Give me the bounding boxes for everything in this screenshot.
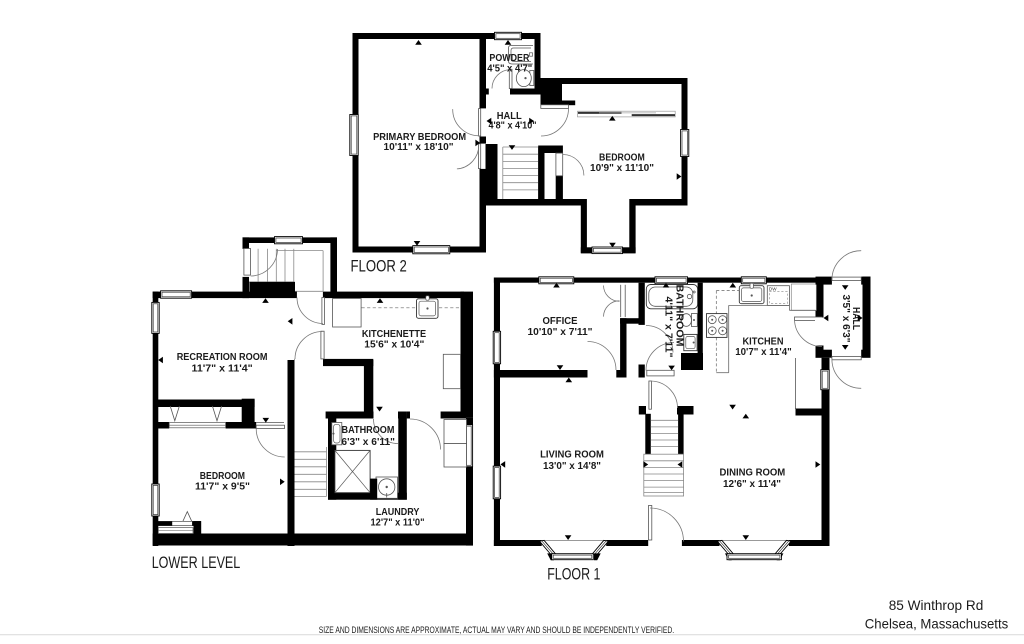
svg-text:RECREATION ROOM: RECREATION ROOM	[177, 352, 268, 363]
svg-text:FLOOR 2: FLOOR 2	[351, 258, 407, 276]
svg-text:6'3" x 6'11": 6'3" x 6'11"	[341, 437, 395, 448]
svg-text:DW: DW	[769, 287, 777, 292]
svg-text:FLOOR 1: FLOOR 1	[547, 565, 600, 583]
svg-text:13'0" x 14'8": 13'0" x 14'8"	[543, 461, 601, 472]
svg-text:10'9" x 11'10": 10'9" x 11'10"	[590, 163, 654, 174]
svg-text:KITCHEN: KITCHEN	[743, 337, 784, 348]
svg-text:LIVING ROOM: LIVING ROOM	[540, 450, 604, 461]
svg-text:12'6" x 11'4": 12'6" x 11'4"	[723, 479, 781, 490]
svg-text:Chelsea, Massachusetts: Chelsea, Massachusetts	[865, 616, 1008, 631]
svg-text:OFFICE: OFFICE	[543, 316, 578, 327]
svg-text:BEDROOM: BEDROOM	[200, 471, 245, 482]
svg-text:11'7" x 9'5": 11'7" x 9'5"	[195, 482, 250, 493]
svg-text:11'7" x 11'4": 11'7" x 11'4"	[192, 363, 253, 374]
svg-text:BATHROOM: BATHROOM	[674, 285, 685, 347]
svg-text:BATHROOM: BATHROOM	[342, 425, 395, 436]
svg-text:3'5" x 6'3": 3'5" x 6'3"	[840, 295, 851, 343]
svg-text:LOWER LEVEL: LOWER LEVEL	[152, 554, 241, 572]
svg-text:BEDROOM: BEDROOM	[599, 152, 645, 163]
svg-text:4'5" x 4'7": 4'5" x 4'7"	[487, 64, 532, 75]
svg-text:85 Winthrop Rd: 85 Winthrop Rd	[889, 598, 984, 613]
svg-text:DINING ROOM: DINING ROOM	[720, 468, 786, 479]
svg-text:4'11" x 7'11": 4'11" x 7'11"	[663, 297, 674, 358]
svg-text:PRIMARY BEDROOM: PRIMARY BEDROOM	[373, 132, 466, 143]
svg-text:12'7" x 11'0": 12'7" x 11'0"	[371, 518, 425, 529]
svg-text:10'11" x 18'10": 10'11" x 18'10"	[384, 142, 454, 153]
svg-text:10'7" x 11'4": 10'7" x 11'4"	[735, 347, 792, 358]
svg-text:KITCHENETTE: KITCHENETTE	[362, 329, 427, 340]
svg-text:SIZE AND DIMENSIONS ARE APPROX: SIZE AND DIMENSIONS ARE APPROXIMATE, ACT…	[319, 625, 674, 635]
svg-text:10'10" x 7'11": 10'10" x 7'11"	[528, 327, 593, 338]
svg-text:15'6" x 10'4": 15'6" x 10'4"	[364, 340, 424, 351]
